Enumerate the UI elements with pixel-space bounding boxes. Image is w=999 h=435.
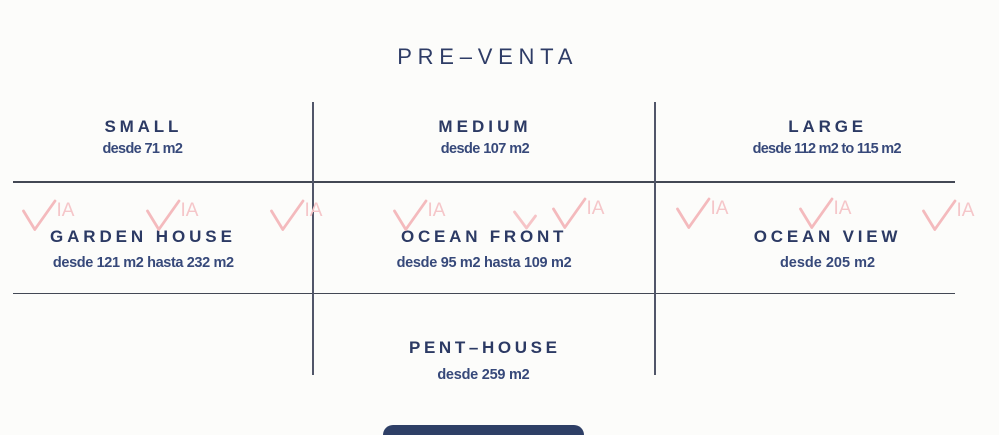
- svg-text:IA: IA: [833, 198, 851, 219]
- svg-text:IA: IA: [181, 199, 199, 220]
- svg-text:IA: IA: [711, 198, 729, 219]
- svg-text:IA: IA: [57, 199, 75, 220]
- svg-text:IA: IA: [428, 199, 446, 220]
- svg-text:IA: IA: [957, 199, 975, 220]
- svg-text:IA: IA: [586, 198, 604, 219]
- svg-text:IA: IA: [304, 199, 322, 220]
